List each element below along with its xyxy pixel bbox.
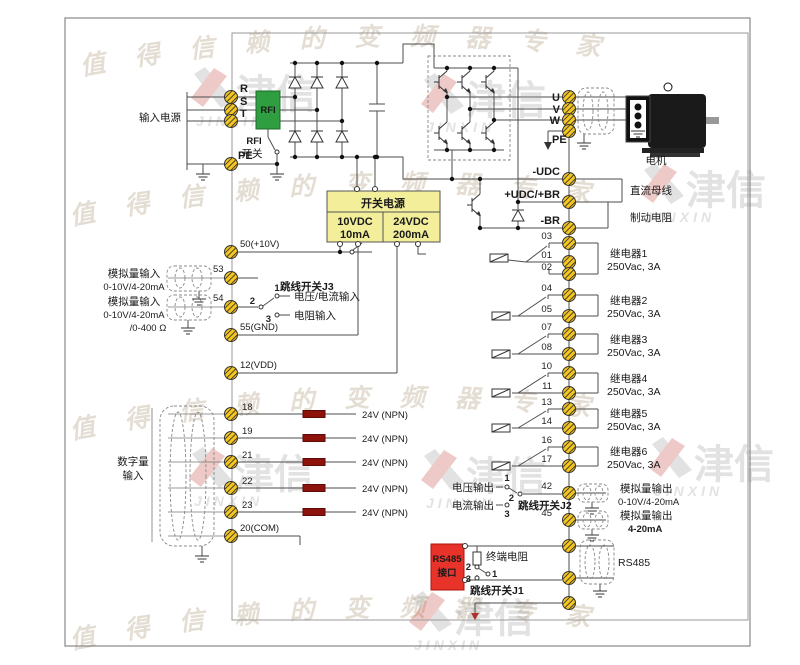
relay3-rating: 250Vac, 3A <box>607 347 661 359</box>
psu-10ma: 10mA <box>340 229 370 241</box>
current-out-label: 电流输出 <box>452 499 494 512</box>
relay1-name: 继电器1 <box>610 247 647 260</box>
relay-coils <box>490 254 510 470</box>
j2-pin1: 1 <box>504 473 510 484</box>
terminal-45-label: 45 <box>541 508 552 519</box>
relay6-name: 继电器6 <box>610 445 647 458</box>
watermark-arc-text: 值得信赖的变频器专家 <box>78 23 632 81</box>
relay2-t05: 05 <box>541 304 552 315</box>
analog-in1-shield <box>167 266 211 291</box>
j1-pin3: 3 <box>466 574 471 585</box>
analog-in2-name: 模拟量输入 <box>108 295 161 308</box>
relay4-rating: 250Vac, 3A <box>607 386 661 398</box>
relay5-rating: 250Vac, 3A <box>607 421 661 433</box>
relay3-t08: 08 <box>541 342 552 353</box>
psu-10v: 10VDC <box>337 216 373 228</box>
terminal-50-label: 50(+10V) <box>240 239 279 250</box>
input-resistors <box>303 411 325 516</box>
relay2-name: 继电器2 <box>610 294 647 307</box>
relay1-t02: 02 <box>541 262 552 273</box>
psu-tap-contact <box>350 250 354 254</box>
motor-label: 电机 <box>646 154 667 167</box>
analog-in2-range2: /0-400 Ω <box>130 323 167 334</box>
terminal-19-label: 19 <box>242 426 253 437</box>
relay4-t11: 11 <box>542 381 552 392</box>
relay6-t17: 17 <box>541 454 552 465</box>
relay6-rating: 250Vac, 3A <box>607 459 661 471</box>
j1-pin2: 2 <box>466 562 471 573</box>
rfi-switch-contact <box>275 150 279 154</box>
digital-in-label2: 输入 <box>123 469 144 482</box>
relay5-t13: 13 <box>541 397 552 408</box>
terminating-resistor <box>473 552 481 565</box>
analog-out2-name: 模拟量输出 <box>620 509 673 522</box>
relay2-t04: 04 <box>541 283 552 294</box>
relay2-rating: 250Vac, 3A <box>607 308 661 320</box>
terminal-u-label: U <box>552 92 560 104</box>
rs485-box-line2: 接口 <box>437 567 456 579</box>
npn-label-5: 24V (NPN) <box>362 508 408 519</box>
udc-pos-label: +UDC/+BR <box>504 189 560 201</box>
terminal-20com-label: 20(COM) <box>240 523 279 534</box>
terminal-21-label: 21 <box>242 450 253 461</box>
relay4-t10: 10 <box>541 361 552 372</box>
relay3-t07: 07 <box>541 322 552 333</box>
terminal-23-label: 23 <box>242 500 253 511</box>
npn-label-2: 24V (NPN) <box>362 434 408 445</box>
terminal-54-label: 54 <box>213 293 224 304</box>
brake-diode <box>512 210 524 221</box>
br-label: -BR <box>540 215 560 227</box>
svg-text:值得信赖的变频器专家: 值得信赖的变频器专家 <box>78 23 632 81</box>
relay3-name: 继电器3 <box>610 333 647 346</box>
j1-label: 跳线开关J1 <box>470 584 524 597</box>
analog-out1-range: 0-10V/4-20mA <box>618 497 680 508</box>
j3-pin1: 1 <box>274 283 280 294</box>
relay1-rating: 250Vac, 3A <box>607 261 661 273</box>
udc-neg-label: -UDC <box>533 166 561 178</box>
npn-label-3: 24V (NPN) <box>362 458 408 469</box>
rfi-switch-line1: RFI <box>246 136 261 147</box>
psu-title: 开关电源 <box>361 196 405 210</box>
rs485-ext-label: RS485 <box>618 557 650 569</box>
analog-in1-range: 0-10V/4-20mA <box>103 282 165 293</box>
terminal-55-label: 55(GND) <box>240 322 278 333</box>
analog-out1-name: 模拟量输出 <box>620 482 673 495</box>
analog-in1-name: 模拟量输入 <box>108 267 161 280</box>
npn-label-4: 24V (NPN) <box>362 484 408 495</box>
voltage-out-label: 电压输出 <box>452 481 494 494</box>
j3-pin2: 2 <box>250 296 255 307</box>
pe-arrow <box>544 142 552 150</box>
terminal-12-label: 12(VDD) <box>240 360 277 371</box>
rfi-filter-label: RFI <box>260 105 275 116</box>
j1-pin1: 1 <box>492 569 498 580</box>
terminal-18-label: 18 <box>242 402 253 413</box>
relay1-t03: 03 <box>541 231 552 242</box>
terminal-pe-right-label: PE <box>552 134 567 146</box>
relay1-t01: 01 <box>541 250 552 261</box>
terminating-resistor-label: 终端电阻 <box>486 550 528 563</box>
digital-in-label1: 数字量 <box>117 455 149 468</box>
relay5-name: 继电器5 <box>610 407 647 420</box>
rfi-switch-line2: 开关 <box>242 147 263 160</box>
npn-label-1: 24V (NPN) <box>362 410 408 421</box>
terminal-w-label: W <box>550 115 561 127</box>
terminal-22-label: 22 <box>242 476 253 487</box>
terminal-53-label: 53 <box>213 264 224 275</box>
analog-out2-range: 4-20mA <box>628 524 662 535</box>
j3-voltage-current-label: 电压/电流输入 <box>294 290 360 303</box>
wiring-diagram: 津信 JINXIN 值得信赖的变频器专家 值得信赖的变频器专家 值得信赖的变频器… <box>0 0 800 665</box>
rs485-box-line1: RS485 <box>432 554 462 565</box>
analog-in2-range: 0-10V/4-20mA <box>103 310 165 321</box>
terminal-42-label: 42 <box>541 481 552 492</box>
rs485-port: RS485 接口 <box>431 544 468 591</box>
j2-pin3: 3 <box>504 509 509 520</box>
psu-200ma: 200mA <box>393 229 429 241</box>
j3-pin3: 3 <box>266 314 271 325</box>
relay6-t16: 16 <box>541 435 552 446</box>
terminal-s-label: S <box>240 96 247 108</box>
dc-bus-label: 直流母线 <box>630 184 672 197</box>
relay5-t14: 14 <box>541 416 552 427</box>
psu-24v: 24VDC <box>393 216 429 228</box>
terminal-t-label: T <box>240 108 247 120</box>
input-power-label: 输入电源 <box>139 111 181 124</box>
brake-resistor-label: 制动电阻 <box>630 211 672 224</box>
switching-psu: 开关电源 10VDC 10mA 24VDC 200mA <box>327 187 440 247</box>
j3-resistance-label: 电阻输入 <box>294 309 336 322</box>
relay4-name: 继电器4 <box>610 372 647 385</box>
j2-pin2: 2 <box>509 493 514 504</box>
motor <box>626 83 719 157</box>
terminal-r-label: R <box>240 83 248 95</box>
